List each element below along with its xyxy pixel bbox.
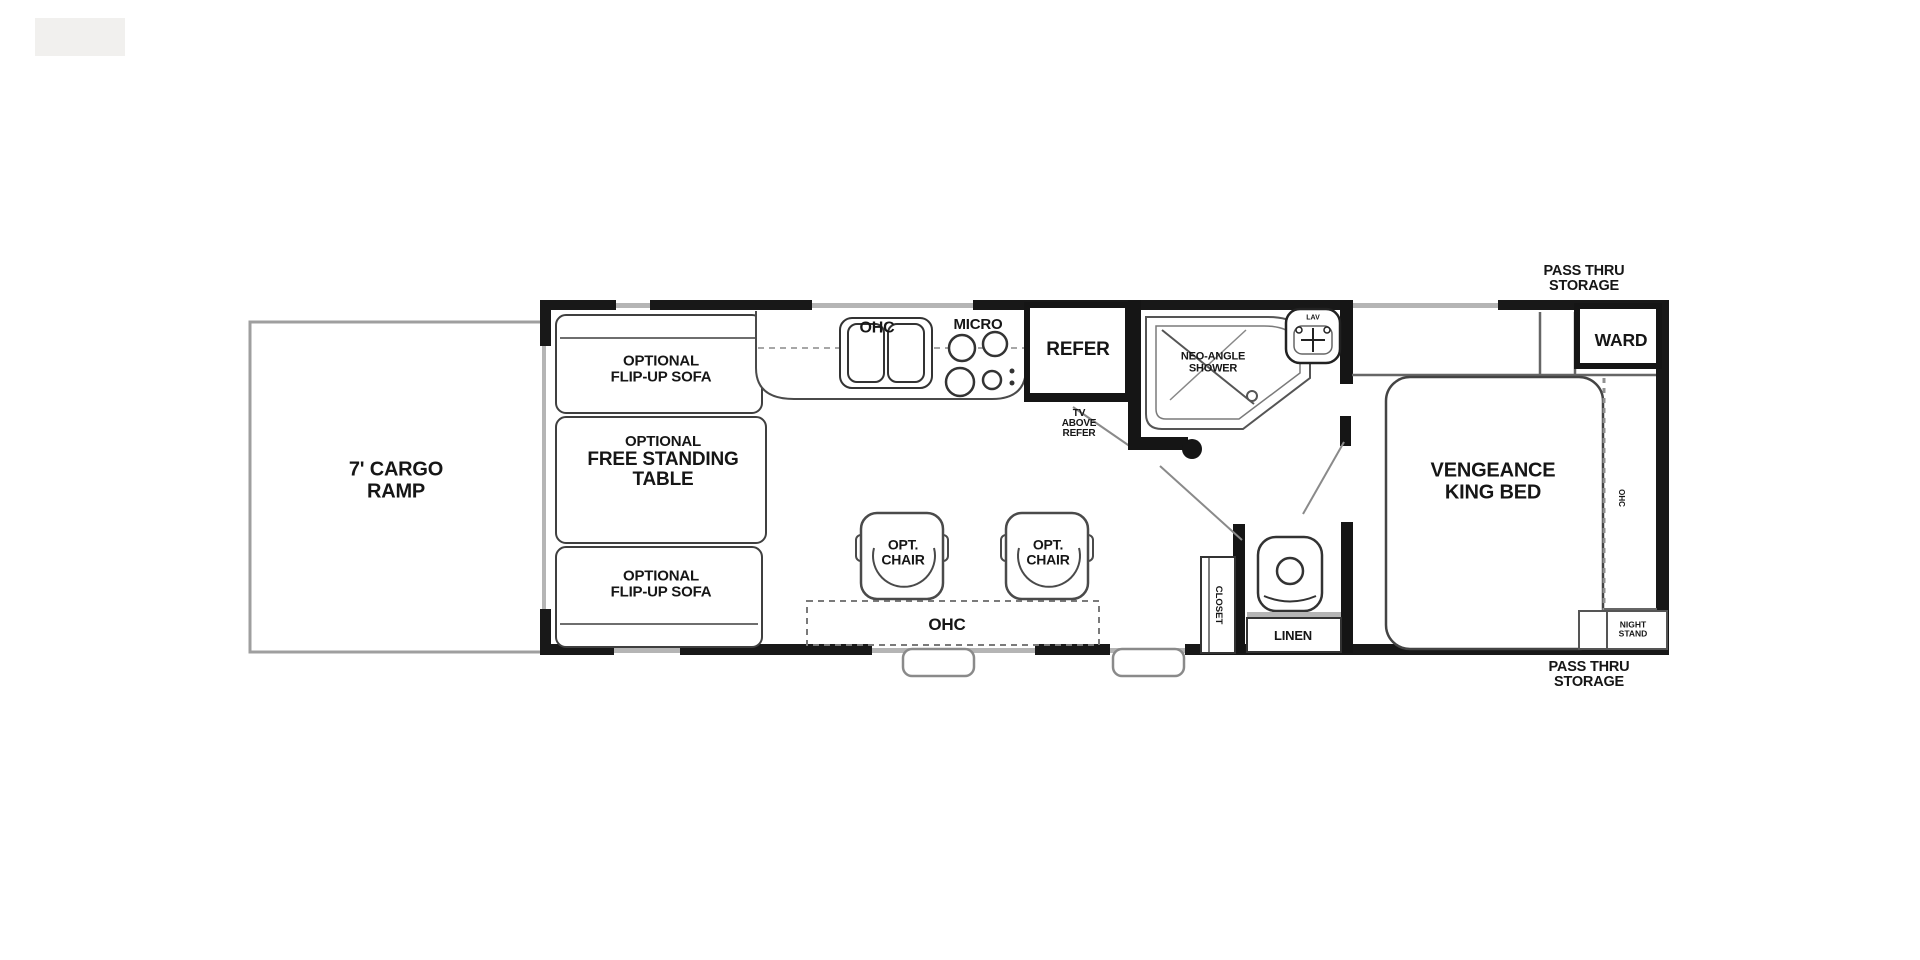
wardrobe-label: WARD bbox=[1595, 331, 1648, 349]
opt-chair-1-label: OPT. CHAIR bbox=[881, 537, 924, 566]
floor-plan-canvas: 7' CARGO RAMP OPTIONAL FLIP-UP SOFA OPTI… bbox=[0, 0, 1920, 960]
table-label-line1: OPTIONAL bbox=[587, 434, 738, 450]
sofa-bottom-label: OPTIONAL FLIP-UP SOFA bbox=[611, 568, 712, 600]
pass-thru-storage-bottom-label: PASS THRU STORAGE bbox=[1549, 660, 1630, 690]
chair1-label-line2: CHAIR bbox=[881, 552, 924, 567]
cargo-ramp-label-line2: RAMP bbox=[349, 481, 443, 503]
toilet-icon bbox=[1258, 537, 1322, 611]
sofa-top-label-line1: OPTIONAL bbox=[611, 353, 712, 369]
pass-thru-bottom-line2: STORAGE bbox=[1549, 675, 1630, 690]
entry-step-1 bbox=[903, 649, 974, 676]
cargo-ramp-label-line1: 7' CARGO bbox=[349, 459, 443, 481]
bath-door-swing bbox=[1160, 466, 1242, 540]
table-label-line3: TABLE bbox=[587, 470, 738, 490]
linen-label: LINEN bbox=[1274, 629, 1312, 643]
bed-label-line1: VENGEANCE bbox=[1431, 460, 1556, 482]
sofa-top-label-line2: FLIP-UP SOFA bbox=[611, 369, 712, 385]
night-stand-label-line2: STAND bbox=[1619, 629, 1648, 638]
shower-label-line1: NEO-ANGLE bbox=[1181, 351, 1245, 363]
pass-thru-bottom-line1: PASS THRU bbox=[1549, 660, 1630, 675]
bed-label-line2: KING BED bbox=[1431, 482, 1556, 504]
opt-chair-2-label: OPT. CHAIR bbox=[1026, 537, 1069, 566]
bedroom-door-swing bbox=[1303, 442, 1344, 514]
table-label: OPTIONAL FREE STANDING TABLE bbox=[587, 434, 738, 490]
shower-label: NEO-ANGLE SHOWER bbox=[1181, 351, 1245, 374]
tv-label-line3: REFER bbox=[1062, 429, 1097, 439]
sofa-bottom-label-line1: OPTIONAL bbox=[611, 568, 712, 584]
entry-step-2 bbox=[1113, 649, 1184, 676]
chair2-label-line1: OPT. bbox=[1026, 537, 1069, 552]
cargo-ramp-label: 7' CARGO RAMP bbox=[349, 459, 443, 502]
shower-label-line2: SHOWER bbox=[1181, 363, 1245, 375]
chair1-label-line1: OPT. bbox=[881, 537, 924, 552]
sofa-top-label: OPTIONAL FLIP-UP SOFA bbox=[611, 353, 712, 385]
refer-label: REFER bbox=[1046, 340, 1109, 360]
closet-label: CLOSET bbox=[1213, 586, 1223, 625]
lav-label: LAV bbox=[1306, 314, 1319, 321]
table-label-line2: FREE STANDING bbox=[587, 450, 738, 470]
king-bed-outline bbox=[1386, 377, 1604, 649]
king-bed-label: VENGEANCE KING BED bbox=[1431, 460, 1556, 503]
bed-ohc-label: OHC bbox=[1617, 489, 1625, 507]
kitchen-ohc-label: OHC bbox=[860, 321, 895, 338]
pass-thru-storage-top-label: PASS THRU STORAGE bbox=[1544, 264, 1625, 294]
tv-above-refer-label: TV ABOVE REFER bbox=[1062, 409, 1097, 439]
lower-ohc-label: OHC bbox=[928, 616, 965, 634]
pass-thru-top-line1: PASS THRU bbox=[1544, 264, 1625, 279]
pass-thru-top-line2: STORAGE bbox=[1544, 279, 1625, 294]
floor-plan-drawing bbox=[0, 0, 1920, 960]
sofa-bottom-label-line2: FLIP-UP SOFA bbox=[611, 584, 712, 600]
micro-label: MICRO bbox=[954, 317, 1003, 333]
chair2-label-line2: CHAIR bbox=[1026, 552, 1069, 567]
night-stand-label: NIGHT STAND bbox=[1619, 621, 1648, 638]
